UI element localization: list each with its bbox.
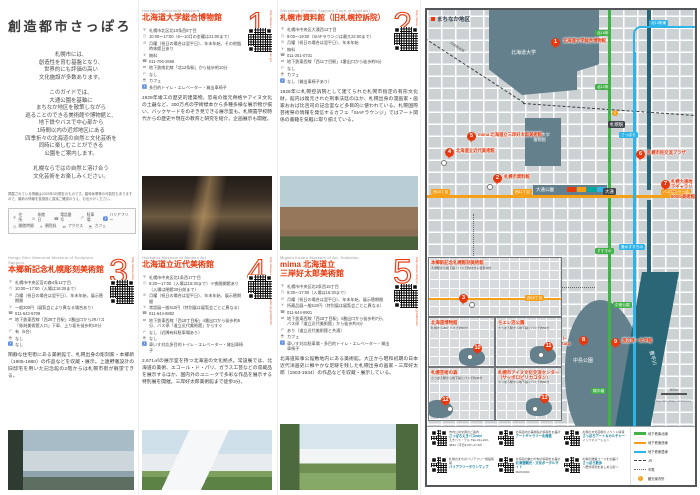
detail-row: ☎011-642-5709 (8, 311, 106, 316)
station-西28丁目: 西28丁目 (525, 295, 544, 301)
station-北12条: 北12条 (595, 84, 610, 90)
closed-icon: ⊘ (8, 293, 13, 304)
detail-row: ¥所蔵品展一般510円（特別展は展覧会ごとに異なる） (280, 303, 390, 308)
tel-icon: ☎ (142, 311, 147, 316)
cafe-icon: ☕ (280, 334, 285, 339)
detail-row: ☕カフェ (142, 78, 244, 83)
detail-text: 月曜（祝日の場合は翌平日）、年末年始、展示替期間 (287, 297, 383, 302)
entry-details: 〒札幌市中央区北2条西15丁目◷9:30〜17:00（入場は16:30まで）⊘月… (280, 284, 418, 351)
entry-body: 北海道知事公館敷地内にある美術館。大正から昭和初期の日本近代洋画史に鮮やかな足跡… (280, 356, 418, 377)
detail-text: なし (149, 336, 157, 341)
qr-code (248, 275, 272, 299)
qr-link-text: 北海道の魅力や旬の情報をお届け北海道観光・文化ポータルサイトMAKOMA! (516, 457, 562, 474)
station-さっぽろ: さっぽろ (619, 132, 638, 138)
bf-icon: ♿ (142, 342, 147, 353)
detail-row: ◷9:30〜17:00（入場は16:30まで）※夜間開館あり（入場は閉館30分前… (142, 281, 244, 292)
legend-row-地下鉄南北線: 地下鉄南北線 (634, 431, 692, 436)
district-label: まちなか地区 (431, 15, 470, 23)
qr-code (394, 27, 418, 51)
closed-icon: ⊘ (31, 216, 36, 221)
toho-line (633, 26, 697, 56)
detail-row: ¥無料 (280, 47, 390, 52)
legend-label: 休館日 (37, 213, 48, 223)
tozai-line (427, 195, 695, 198)
detail-row: ⊘月曜（祝日の場合は翌平日）、年末年始 (280, 40, 390, 45)
map-marker-7: 7 (661, 180, 670, 189)
qr-code (564, 457, 580, 473)
photo-museum-interior (142, 176, 272, 250)
addr-icon: 〒 (12, 216, 17, 221)
qr-code (498, 457, 514, 473)
entry-details: 〒札幌市中央区宮の森4条12丁目◷10:00〜17:00（入場は16:30まで）… (8, 280, 134, 347)
tel-icon: ☎ (142, 59, 147, 64)
detail-row: ♿なし（貸出車椅子あり） (280, 79, 390, 84)
line-legend: 地下鉄南北線地下鉄東西線地下鉄東豊線JR市電i観光案内所 (630, 427, 695, 485)
detail-row: ◷10:00〜17:00（入場は16:30まで） (8, 286, 106, 291)
time-icon: ◷ (8, 286, 13, 291)
detail-text: 9:30〜17:00（入場は16:30まで） (287, 290, 348, 295)
intro-text: 札幌市には、 創造性を育む基盤となり、 世界的にも評価の高い 文化施設が多数あり… (8, 52, 134, 181)
photo-shiryokan-building (280, 176, 418, 250)
detail-row: ◷10:00〜17:00（6〜10月の金曜は21:00まで） (142, 34, 244, 39)
fee-icon: ¥ (142, 53, 147, 58)
fee-icon: ¥ (39, 225, 44, 229)
map-marker-12: 12 (441, 396, 450, 405)
photo-modern-art-museum (142, 430, 272, 490)
detail-text: なし (287, 66, 295, 71)
fee-icon: ¥ (142, 305, 147, 310)
detail-text: なし (15, 342, 23, 347)
station-西18丁目: 西18丁目 (431, 189, 450, 195)
inset-title: 本郷新記念札幌彫刻美術館 (431, 260, 484, 265)
bf-icon: ♿ (280, 79, 285, 84)
detail-text: 多目的トイレ・エレベーター・貸出車椅子 (149, 85, 227, 90)
detail-text: 札幌市中央区北2条西15丁目 (287, 284, 339, 289)
station-大通: 大通 (603, 188, 616, 195)
addr-icon: 〒 (142, 275, 147, 280)
detail-text: 地下鉄東西線「西18丁目駅」4番出口から徒歩約7分、バス停「道立近代美術館」から… (287, 316, 390, 327)
marker-label: 札幌市資料館 (504, 175, 530, 180)
detail-text: なし (15, 336, 23, 341)
legend-label: 電話番号 (60, 213, 75, 223)
detail-row: ◷9:00〜19:00（SIAFラウンジは最大22:00まで） (280, 34, 390, 39)
cafe-icon: ☕ (8, 336, 13, 341)
station-すすきの: すすきの (595, 248, 614, 254)
bus-stop-dot (441, 160, 447, 166)
map-marker-2: 2 (493, 174, 502, 183)
detail-text: 011-251-0731 (287, 53, 312, 58)
legend-label: 地下鉄東西線 (648, 440, 668, 445)
legend-label: アクセス (68, 224, 83, 229)
detail-row: Pなし (280, 66, 390, 71)
icon-legend-row: 〒住所⊘休館日☎電話番号P駐車場♿バリアフリー (12, 213, 132, 223)
access-icon: ⇄ (142, 318, 147, 329)
detail-row: ⊘月曜（祝日の場合は翌平日）、年末年始、その他臨時休館日あり (142, 41, 244, 52)
detail-text: 011-644-6882 (149, 311, 174, 316)
detail-row: 〒札幌市中央区大通西13丁目 (280, 27, 390, 32)
detail-row: 〒札幌市中央区宮の森4条12丁目 (8, 280, 106, 285)
qr-links: 市内公共交通のご案内さっぽろえきバスnaviえきバス・テル TEL.011-22… (427, 427, 630, 485)
detail-text: 地下鉄東西線「西18丁目駅」4番出口から徒歩約5分、バス停「道立近代美術館」から… (149, 318, 244, 329)
tel-icon: ☎ (54, 216, 59, 221)
inset-subtitle: さっぽろ駅から地下鉄とバスで約50分 (498, 326, 549, 330)
marker-label: 北海道立近代美術館 (456, 149, 495, 154)
bf-icon: ♿ (142, 85, 147, 90)
line-swatch (634, 442, 646, 444)
legend-item: 〒住所 (12, 213, 26, 223)
addr-icon: 〒 (8, 280, 13, 285)
detail-text: 札幌市中央区宮の森4条12丁目 (15, 280, 71, 285)
qr-code (431, 430, 447, 446)
detail-row: ⇄地下鉄東西線「西18丁目駅」4番出口から徒歩約7分、バス停「道立近代美術館」か… (280, 316, 390, 327)
detail-text: あり（道立近代美術館と共通） (287, 328, 344, 333)
map-marker-6: 6 (636, 150, 645, 159)
inset-subtitle: さっぽろ駅から地下鉄とバスで約60分 (498, 380, 549, 384)
access-icon: ⇄ (8, 317, 13, 328)
inset-title: 札幌市アイヌ文化交流センター （サッポロピリカコタン） (498, 370, 559, 380)
addr-icon: 〒 (280, 284, 285, 289)
cafe-icon: ☕ (88, 224, 93, 229)
detail-row: ⇄地下鉄東西線「西28丁目駅」2番出口からJRバス「彫刻美術館入口」下車、上り坂… (8, 317, 106, 328)
tel-icon: ☎ (280, 53, 285, 58)
legend-item: P駐車場 (80, 213, 98, 223)
detail-row: ♿車いす対応多目的トイレ・エレベーター・貸出車椅子 (142, 342, 244, 353)
entry-3: Hongo Shin Memorial Museum of Sculpture,… (8, 255, 134, 380)
inset-title: 札幌芸術の森 (431, 370, 457, 375)
label-jr-line: JR函館本線 (449, 40, 466, 53)
inset-map-12: 札幌芸術の森さっぽろ駅から地下鉄とバスで約40分12 (428, 367, 495, 421)
map-legend-panel: 市内公共交通のご案内さっぽろえきバスnaviえきバス・テル TEL.011-22… (427, 426, 695, 485)
map-marker-11: 11 (544, 342, 553, 351)
detail-row: Pなし（近隣有料駐車場あり） (142, 330, 244, 335)
detail-text: なし（貸出車椅子あり） (287, 79, 332, 84)
detail-text: 011-642-5709 (15, 311, 40, 316)
detail-row: P有（5台） (8, 329, 106, 334)
marker-label: 札幌市民交流プラザ (647, 151, 686, 156)
legend-row-市電: 市電 (634, 467, 692, 472)
map-marker-1: 1 (551, 38, 560, 47)
fee-icon: ¥ (280, 303, 285, 308)
detail-row: ¥常設展一般510円（特別展は展覧会ごとに異なる） (142, 305, 244, 310)
legend-label: 駐車場 (87, 213, 98, 223)
sosei-river (647, 200, 651, 280)
detail-row: ♿多目的トイレ・エレベーター・貸出車椅子 (142, 85, 244, 90)
time-icon: ◷ (280, 34, 285, 39)
closed-icon: ⊘ (142, 293, 147, 304)
marker-label: 札幌大通地下ギャラリー 500m美術館 (671, 180, 695, 200)
legend-label: 観光案内所 (648, 476, 664, 481)
park-icon: P (280, 328, 285, 333)
detail-text: 有（5台） (15, 329, 34, 334)
qr-code (110, 280, 134, 304)
qr-code (564, 430, 580, 446)
toho-line (633, 52, 636, 429)
detail-row: Pなし (142, 72, 244, 77)
qr-link-text: 北海道内の美術館の情報をお届けアートギャラリー北海道 (516, 430, 561, 438)
legend-item: ¥観覧料 (39, 224, 57, 229)
bf-icon: ♿ (280, 341, 285, 352)
brochure-sheet: 創造都市さっぽろ 札幌市には、 創造性を育む基盤となり、 世界的にも評価の高い … (0, 0, 700, 495)
photo-mima-museum (280, 424, 418, 490)
line-swatch (634, 432, 646, 434)
namboku-line (608, 10, 611, 429)
entry-body: 1929年竣工の歴史的建築物。恐竜の復元骨格やアイヌ文化の土器など、300万点の… (142, 95, 272, 123)
qr-code (248, 28, 272, 52)
addr-icon: 〒 (142, 28, 147, 33)
odori-chome-chip (567, 187, 576, 192)
cafe-icon: ☕ (142, 336, 147, 341)
bf-icon: ♿ (8, 342, 13, 347)
cafe-icon: ☕ (142, 78, 147, 83)
detail-row: ☎011-644-6882 (142, 311, 244, 316)
marker-label: 渡辺淳一文学館 (622, 339, 652, 344)
line-swatch (634, 451, 646, 453)
fee-icon: ¥ (8, 305, 13, 310)
legend-label: JR (648, 459, 652, 463)
qr-link-text: 札幌の散策コースをお届けさっぽろ散歩〜野外彫刻を楽しめる街〜 (582, 457, 618, 470)
detail-text: 札幌市北区北10条西8丁目 (149, 28, 197, 33)
detail-text: カフェ (287, 334, 299, 339)
odori-chome-chip (587, 187, 596, 192)
detail-row: ⇄地下鉄東西線「西18丁目駅」4番出口から徒歩約5分、バス停「道立近代美術館」か… (142, 318, 244, 329)
page-title: 創造都市さっぽろ (8, 16, 134, 35)
detail-row: ⇄地下鉄南北線「北12条駅」から徒歩約10分 (142, 65, 244, 70)
access-icon: ⇄ (280, 316, 285, 327)
park-icon: P (142, 72, 147, 77)
detail-row: ☎011-706-2658 (142, 59, 244, 64)
access-icon: ⇄ (62, 224, 67, 229)
legend-label: 住所 (19, 213, 26, 223)
legend-label: 開館時間 (19, 224, 34, 229)
bus-stop-dot (538, 352, 544, 358)
access-icon: ⇄ (142, 65, 147, 70)
entry-body: 1926年に札幌控訴院として建てられた札幌市指定の有形文化財。館内は復元された刑… (280, 89, 418, 124)
addr-icon: 〒 (280, 27, 285, 32)
detail-row: ◷9:30〜17:00（入場は16:30まで） (280, 290, 390, 295)
entry-details: 〒札幌市北区北10条西8丁目◷10:00〜17:00（6〜10月の金曜は21:0… (142, 28, 272, 90)
map-marker-10: 10 (473, 344, 482, 353)
qr-link-text: 市内公共交通のご案内さっぽろえきバスnaviえきバス・テル TEL.011-22… (449, 430, 495, 447)
bus-stop-dot (447, 406, 453, 412)
detail-text: 一般300円（展覧会により異なる場合あり） (15, 305, 95, 310)
park-icon: P (142, 330, 147, 335)
legend-row-地下鉄東西線: 地下鉄東西線 (634, 440, 692, 445)
entry-details: 〒札幌市中央区大通西13丁目◷9:00〜19:00（SIAFラウンジは最大22:… (280, 27, 418, 84)
info-swatch: i (638, 476, 643, 481)
tourist-info-icon: i (612, 110, 618, 116)
entry-details: 〒札幌市中央区北1条西17丁目◷9:30〜17:00（入場は16:30まで）※夜… (142, 275, 272, 353)
detail-text: 9:30〜17:00（入場は16:30まで）※夜間開館あり（入場は閉館30分前ま… (149, 281, 244, 292)
detail-row: ☕カフェ (280, 334, 390, 339)
detail-row: ☕カフェ (280, 72, 390, 77)
detail-row: ☕なし (8, 336, 106, 341)
entry-1: Hokkaido University Museum 北海道大学総合博物館 1 … (142, 8, 272, 123)
entry-5: Migishi Kotaro Museum of Art, Hokkaido m… (280, 255, 418, 377)
detail-row: ☕なし (142, 336, 244, 341)
detail-text: なし（近隣有料駐車場あり） (149, 330, 202, 335)
detail-text: カフェ (149, 78, 161, 83)
legend-row-地下鉄東豊線: 地下鉄東豊線 (634, 449, 692, 454)
detail-row: Pあり（道立近代美術館と共通） (280, 328, 390, 333)
label-odori-park: 大通公園 (536, 187, 554, 192)
inset-map-11: モエレ沼公園さっぽろ駅から地下鉄とバスで約50分11 (495, 317, 562, 367)
map-marker-13: 13 (540, 394, 549, 403)
label-university: 北海道大学 (511, 50, 536, 56)
detail-row: 〒札幌市北区北10条西8丁目 (142, 28, 244, 33)
fold-line (420, 0, 421, 495)
qr-link: 札幌の散策コースをお届けさっぽろ散歩〜野外彫刻を楽しめる街〜 (564, 457, 628, 482)
legend-item: ☕カフェ (88, 224, 106, 229)
detail-text: 札幌市中央区大通西13丁目 (287, 27, 337, 32)
detail-text: 地下鉄東西線「西28丁目駅」2番出口からJRバス「彫刻美術館入口」下車、上り坂を… (15, 317, 106, 328)
odori-chome-chip (577, 187, 586, 192)
legend-item: ◷開館時間 (12, 224, 34, 229)
detail-text: 地下鉄南北線「北12条駅」から徒歩約10分 (149, 65, 228, 70)
inset-subtitle: 大通駅から地下鉄・バスで約15分＋徒歩10分 (431, 266, 492, 270)
entry-2: Shiryokan (Former Sapporo Court of Appea… (280, 8, 418, 124)
detail-row: ¥無料 (142, 53, 244, 58)
detail-text: 無料 (149, 53, 157, 58)
detail-text: 10:00〜17:00（入場は16:30まで） (15, 286, 78, 291)
legend-label: 市電 (648, 467, 655, 472)
legend-item: ☎電話番号 (54, 213, 76, 223)
tel-icon: ☎ (8, 311, 13, 316)
qr-link: 札幌の文化芸術のイベント情報さっぽろアート＆カルチャーインフォメーション (564, 430, 628, 455)
detail-text: 9:00〜19:00（SIAFラウンジは最大22:00まで） (287, 34, 374, 39)
park-icon: P (80, 216, 85, 220)
qr-link: 北海道内の美術館の情報をお届けアートギャラリー北海道 (498, 430, 562, 455)
icon-legend: 〒住所⊘休館日☎電話番号P駐車場♿バリアフリー ◷開館時間¥観覧料⇄アクセス☕カ… (8, 208, 136, 234)
legend-row-観光案内所: i観光案内所 (634, 476, 692, 481)
area-hokkaido-university (489, 10, 599, 95)
detail-text: 常設展一般510円（特別展は展覧会ごとに異なる） (149, 305, 242, 310)
legend-row-JR: JR (634, 459, 692, 463)
cafe-icon: ☕ (280, 72, 285, 77)
legend-label: 地下鉄東豊線 (648, 449, 668, 454)
qr-code (498, 430, 514, 446)
detail-text: カフェ (287, 72, 299, 77)
park-icon: P (280, 66, 285, 71)
legend-label: カフェ (95, 224, 106, 229)
detail-text: なし (149, 72, 157, 77)
detail-text: 車いす対応多目的トイレ・エレベーター・貸出車椅子 (149, 342, 244, 353)
dot-swatch (634, 469, 646, 470)
station-北18条: 北18条 (595, 30, 610, 36)
map-scale: 500m (661, 388, 687, 395)
station-中島公園: 中島公園 (613, 302, 632, 308)
map-marker-9: 9 (611, 338, 620, 347)
fee-icon: ¥ (280, 47, 285, 52)
detail-row: ⊘月曜（祝日の場合は翌平日）、年末年始、展示替期間 (280, 297, 390, 302)
legend-item: ♿バリアフリー (103, 213, 132, 223)
qr-link-text: 札幌の文化芸術のイベント情報さっぽろアート＆カルチャーインフォメーション (582, 430, 625, 443)
legend-item: ⊘休館日 (31, 213, 49, 223)
dash-swatch (634, 460, 646, 461)
detail-row: ⊘月曜（祝日の場合は翌平日）、年末年始、展示替期間 (142, 293, 244, 304)
detail-text: 所蔵品展一般510円（特別展は展覧会ごとに異なる） (287, 303, 384, 308)
station-幌平橋: 幌平橋 (591, 388, 606, 394)
icon-legend-row: ◷開館時間¥観覧料⇄アクセス☕カフェ (12, 224, 132, 229)
qr-code (431, 457, 447, 473)
detail-text: 月曜（祝日の場合は翌平日）、年末年始、展示替期間 (15, 293, 106, 304)
map-marker-3: 3 (459, 294, 468, 303)
detail-text: 011-644-8901 (287, 310, 312, 315)
time-icon: ◷ (12, 224, 17, 229)
inset-map-10: 北海道博物館札幌からJRとバスで約50分10 (428, 317, 495, 367)
inset-map-3: 本郷新記念札幌彫刻美術館大通駅から地下鉄・バスで約15分＋徒歩10分西28丁目3 (428, 257, 562, 317)
detail-text: 月曜（祝日の場合は翌平日）、年末年始、展示替期間 (149, 293, 244, 304)
closed-icon: ⊘ (280, 297, 285, 302)
station-豊水すすきの: 豊水すすきの (619, 244, 645, 250)
disclaimer-note: 掲載されている情報は2023年3月現在のものです。臨時休業等の可能性もありますの… (8, 192, 134, 201)
time-icon: ◷ (142, 34, 147, 39)
detail-text: 月曜（祝日の場合は翌平日）、年末年始、その他臨時休館日あり (149, 41, 244, 52)
marker-label: 北海道大学総合博物館 (563, 39, 606, 44)
detail-text: 地下鉄東西線「西11丁目駅」1番出口から徒歩約5分 (287, 59, 382, 64)
qr-link: 市内公共交通のご案内さっぽろえきバスnaviえきバス・テル TEL.011-22… (431, 430, 495, 455)
detail-text: 車いす対応駐車場・多目的トイレ・エレベーター・貸出車椅子 (287, 341, 390, 352)
detail-row: ¥一般300円（展覧会により異なる場合あり） (8, 305, 106, 310)
legend-label: バリアフリー (109, 213, 132, 223)
access-icon: ⇄ (280, 59, 285, 64)
inset-title: 北海道博物館 (431, 320, 457, 325)
tel-icon: ☎ (280, 310, 285, 315)
map-marker-4: 4 (445, 148, 454, 157)
detail-text: 011-706-2658 (149, 59, 174, 64)
legend-label: 地下鉄南北線 (648, 431, 668, 436)
detail-row: ♿なし (8, 342, 106, 347)
closed-icon: ⊘ (280, 40, 285, 45)
station-西11丁目: 西11丁目 (513, 189, 532, 195)
bus-stop-dot (467, 354, 473, 360)
inset-subtitle: 札幌からJRとバスで約50分 (431, 326, 468, 330)
marker-label: mima 北海道立三岸好太郎美術館 (478, 133, 542, 138)
detail-row: ⊘月曜（祝日の場合は翌平日）、年末年始、展示替期間 (8, 293, 106, 304)
bus-stop-dot (532, 406, 538, 412)
detail-text: 月曜（祝日の場合は翌平日）、年末年始 (287, 40, 359, 45)
detail-text: 札幌市中央区北1条西17丁目 (149, 275, 201, 280)
qr-link: 北海道の魅力や旬の情報をお届け北海道観光・文化ポータルサイトMAKOMA! (498, 457, 562, 482)
city-map: まちなか地区 北海道大学 北海道大学 植物園 大通公園 中島公園 豊平川 JR函… (425, 8, 697, 487)
fold-line (277, 0, 278, 495)
detail-text: 10:00〜17:00（6〜10月の金曜は21:00まで） (149, 34, 232, 39)
label-nakajima-park: 中島公園 (573, 358, 593, 364)
park-icon: P (8, 329, 13, 334)
detail-row: ⇄地下鉄東西線「西11丁目駅」1番出口から徒歩約5分 (280, 59, 390, 64)
entry-body: 2,671㎡の展示室を持つ北海道の文化拠点。常設展では、北海道の美術、エコール・… (142, 358, 272, 386)
photo-sculpture-museum (8, 430, 134, 490)
map-credit: © OpenStreetMap contributors (621, 400, 691, 404)
closed-icon: ⊘ (142, 41, 147, 52)
detail-text: 無料 (287, 47, 295, 52)
qr-link: 札幌のまちのバリアフリー施設情報バリアフリータウンマップ (431, 457, 495, 482)
station-北13条東: 北13条東 (649, 20, 668, 26)
entry-4: Hokkaido Museum of Modern Art 北海道立近代美術館 … (142, 255, 272, 386)
bus-stop-dot (469, 302, 475, 308)
qr-code (394, 284, 418, 308)
detail-row: 〒札幌市中央区北2条西15丁目 (280, 284, 390, 289)
entry-body: 閑静な住宅街にある美術館で、札幌出身の彫刻家・本郷新（1905-1980）の作品… (8, 352, 134, 380)
legend-label: 観覧料 (45, 224, 56, 229)
station-札幌駅: 札幌駅 (608, 121, 625, 128)
bf-icon: ♿ (103, 216, 108, 221)
detail-row: ☎011-644-8901 (280, 310, 390, 315)
time-icon: ◷ (280, 290, 285, 295)
qr-link-text: 札幌のまちのバリアフリー施設情報バリアフリータウンマップ (449, 457, 495, 470)
legend-item: ⇄アクセス (62, 224, 84, 229)
map-marker-8: 8 (579, 336, 588, 345)
inset-map-13: 札幌市アイヌ文化交流センター （サッポロピリカコタン）さっぽろ駅から地下鉄とバス… (495, 367, 562, 421)
